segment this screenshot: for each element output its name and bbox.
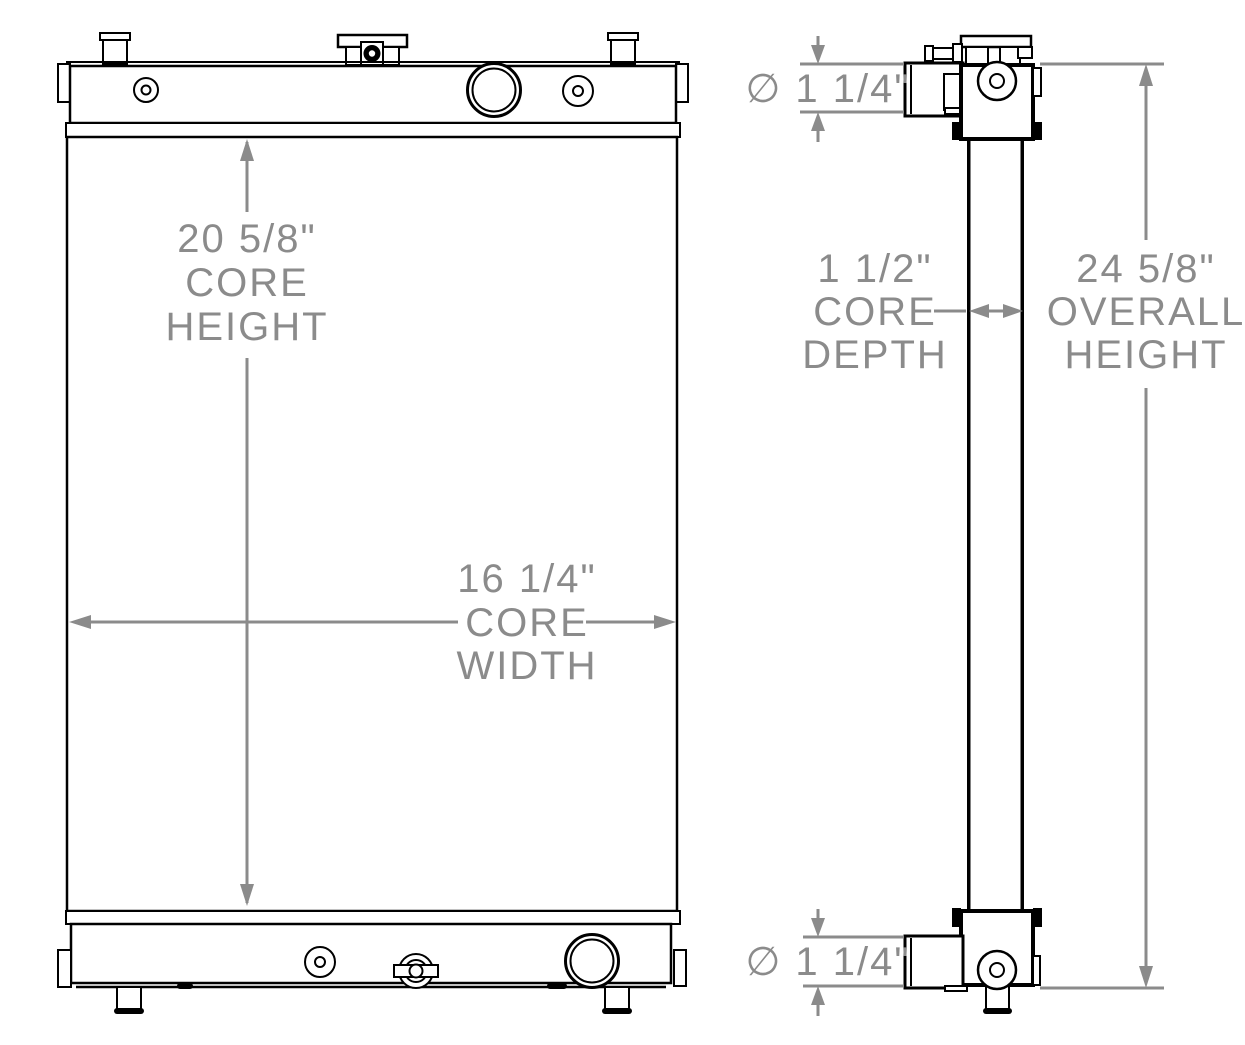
top-tank-bolt-right [563,76,593,106]
overall-height-arrow-up [1139,64,1153,86]
side-bottom-tab-right [1033,956,1040,985]
front-bottom-tab-right [674,950,686,986]
side-cap-plate [961,36,1031,47]
side-filler-cap [961,36,1032,65]
side-cap-wing [1018,47,1032,58]
overflow-tube [933,48,955,59]
overflow-fitting [925,44,962,62]
side-core-front-face [967,139,971,911]
overall-height-value: 24 5/8" [1076,247,1215,291]
side-cap-left-post [966,47,988,65]
side-top-bolt [978,62,1016,100]
outlet-pipe-step [945,986,967,991]
front-bottom-tab-left [58,950,71,987]
bottom-port-arrow-up [811,986,825,1005]
top-tank-plate [66,123,680,137]
radiator-drawing: 20 5/8" CORE HEIGHT 16 1/4" CORE WIDTH ∅… [0,0,1245,1045]
core-width-label-2: WIDTH [456,644,597,688]
bottom-tank-plate [66,911,680,924]
core-width-value: 16 1/4" [457,557,596,601]
overall-height-label-2: HEIGHT [1064,333,1227,377]
bottom-port-arrow-down [811,918,825,937]
outlet-opening-outer [566,935,619,988]
front-view [58,33,688,1014]
outlet-pipe [905,936,963,988]
bottom-weld-right [547,983,567,989]
front-leg-left [117,987,141,1009]
core-depth-label-2: DEPTH [802,333,948,377]
top-port-value: ∅ 1 1/4" [745,67,910,111]
overflow-tube-end [925,46,933,61]
overall-height-label-1: OVERALL [1047,290,1245,334]
top-tank-bolt-left [134,78,158,102]
drawing-svg: 20 5/8" CORE HEIGHT 16 1/4" CORE WIDTH ∅… [0,0,1245,1045]
bottom-weld-left [177,983,193,989]
side-top-tab-right [1033,68,1041,96]
bottom-port-value: ∅ 1 1/4" [745,940,910,984]
core-depth-value: 1 1/2" [817,247,932,291]
drain-plug-center [410,965,423,978]
core-height-value: 20 5/8" [177,217,316,261]
top-port-arrow-down [811,45,825,64]
core-width-label-1: CORE [465,601,589,645]
front-leg-right [605,987,629,1009]
side-top-flange-right [1033,122,1042,140]
core-depth-arrow-right [1003,304,1023,318]
overall-height-arrow-down [1139,966,1153,988]
side-view [905,36,1042,1014]
front-top-tab-right [676,64,688,102]
filler-opening-outer [468,64,521,117]
core-height-label-1: CORE [185,261,309,305]
side-core-rear-face [1021,139,1025,911]
filler-cap-nut-hole [369,50,375,56]
core-depth-arrow-left [969,304,989,318]
top-port-arrow-up [811,112,825,131]
core-height-label-2: HEIGHT [165,305,328,349]
overflow-collar [953,44,962,62]
front-leg-left-foot [114,1008,144,1014]
dimension-top-port: ∅ 1 1/4" [745,36,910,142]
dimension-core-depth: 1 1/2" CORE DEPTH [802,247,1023,377]
front-top-tab-left [58,64,70,102]
front-top-pin-left-cap [100,33,130,40]
core-depth-label-1: CORE [813,290,937,334]
side-bottom-bolt [978,951,1016,989]
front-top-pin-right-cap [608,33,638,40]
dimension-bottom-port: ∅ 1 1/4" [745,909,910,1016]
filler-cap [338,35,407,65]
bottom-tank-bolt [305,947,335,977]
core [67,137,677,911]
front-leg-right-foot [602,1008,632,1014]
side-leg-foot [983,1008,1012,1014]
dimension-overall-height: 24 5/8" OVERALL HEIGHT [1040,64,1245,988]
side-top-flange-left [952,122,961,140]
